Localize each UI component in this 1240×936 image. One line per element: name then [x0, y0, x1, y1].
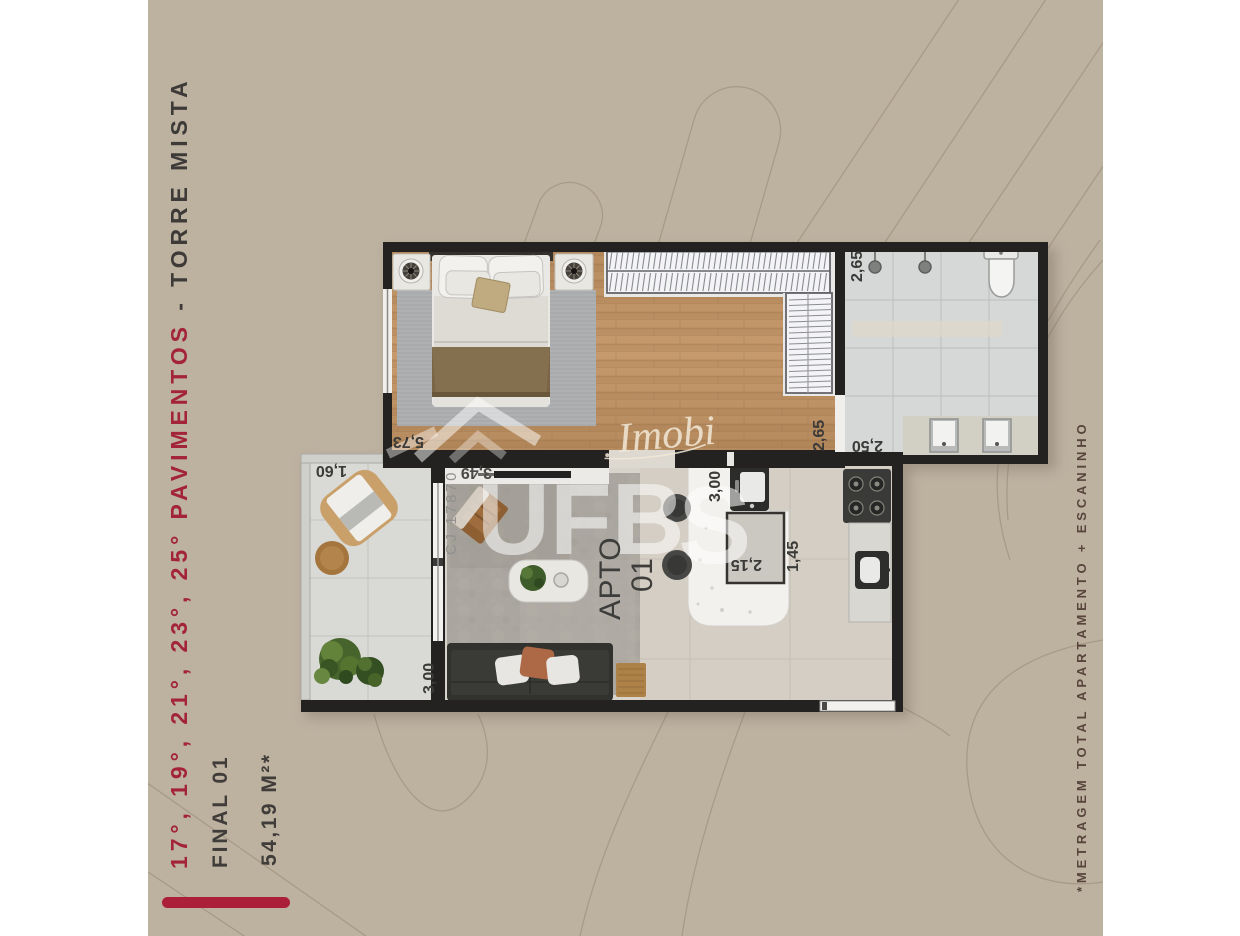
- svg-text:2,65: 2,65: [849, 251, 866, 282]
- svg-text:2,50: 2,50: [852, 437, 883, 454]
- svg-text:1,45: 1,45: [785, 541, 802, 572]
- svg-text:2,65: 2,65: [811, 420, 828, 451]
- svg-text:5,73: 5,73: [393, 433, 424, 450]
- svg-text:3,49: 3,49: [461, 464, 492, 481]
- svg-text:01: 01: [626, 558, 659, 592]
- svg-text:3,00: 3,00: [707, 471, 724, 502]
- svg-text:2,15: 2,15: [731, 556, 762, 573]
- svg-text:1,60: 1,60: [316, 462, 347, 479]
- svg-text:APTO: APTO: [594, 537, 627, 620]
- svg-text:Imobi: Imobi: [615, 408, 718, 462]
- svg-text:3,00: 3,00: [421, 663, 438, 694]
- svg-text:CJ 17870: CJ 17870: [443, 470, 460, 555]
